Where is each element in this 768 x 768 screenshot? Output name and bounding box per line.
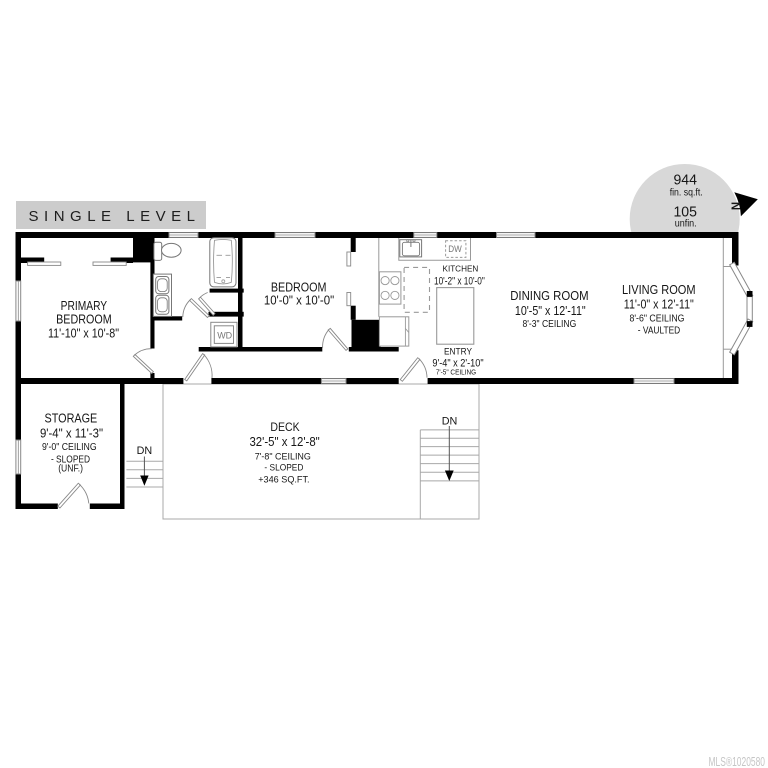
svg-text:unfin.: unfin. — [675, 219, 697, 230]
svg-text:8'-6" CEILING: 8'-6" CEILING — [630, 314, 685, 325]
svg-text:11'-0" x 12'-11": 11'-0" x 12'-11" — [624, 296, 694, 311]
svg-text:LIVING ROOM: LIVING ROOM — [622, 282, 696, 297]
svg-text:11'-10" x 10'-8": 11'-10" x 10'-8" — [48, 327, 119, 341]
svg-text:WD: WD — [217, 331, 232, 342]
svg-text:ENTRY: ENTRY — [444, 346, 473, 357]
svg-text:9'-0" CEILING: 9'-0" CEILING — [42, 442, 97, 453]
svg-text:32'-5" x 12'-8": 32'-5" x 12'-8" — [249, 435, 319, 449]
svg-text:N: N — [728, 202, 740, 210]
svg-text:DN: DN — [137, 445, 153, 457]
svg-text:SINGLE LEVEL: SINGLE LEVEL — [29, 208, 201, 225]
svg-text:- SLOPED: - SLOPED — [264, 463, 303, 474]
svg-text:BEDROOM: BEDROOM — [56, 313, 112, 327]
svg-text:8'-3" CEILING: 8'-3" CEILING — [523, 319, 577, 330]
svg-text:MLS®1020580: MLS®1020580 — [709, 755, 766, 768]
svg-text:- VAULTED: - VAULTED — [638, 325, 680, 336]
svg-text:944: 944 — [673, 173, 697, 189]
svg-text:DN: DN — [442, 415, 458, 427]
svg-text:DINING ROOM: DINING ROOM — [510, 288, 588, 303]
svg-text:9'-4" x 11'-3": 9'-4" x 11'-3" — [40, 427, 103, 441]
svg-text:7'-5" CEILING: 7'-5" CEILING — [436, 368, 477, 377]
svg-text:DECK: DECK — [270, 422, 299, 434]
svg-text:10'-2" x 10'-0": 10'-2" x 10'-0" — [434, 275, 485, 287]
svg-text:10'-0" x 10'-0": 10'-0" x 10'-0" — [264, 293, 334, 307]
svg-text:DW: DW — [448, 244, 462, 254]
svg-text:+346 SQ.FT.: +346 SQ.FT. — [258, 475, 309, 486]
svg-text:7'-8" CEILING: 7'-8" CEILING — [255, 452, 311, 463]
svg-text:KITCHEN: KITCHEN — [443, 264, 479, 274]
svg-text:fin. sq.ft.: fin. sq.ft. — [670, 187, 703, 198]
svg-text:10'-5" x 12'-11": 10'-5" x 12'-11" — [515, 303, 586, 318]
svg-text:(UNF.): (UNF.) — [58, 464, 83, 475]
svg-text:PRIMARY: PRIMARY — [61, 299, 108, 313]
svg-text:STORAGE: STORAGE — [45, 412, 98, 426]
svg-text:BEDROOM: BEDROOM — [271, 281, 327, 295]
